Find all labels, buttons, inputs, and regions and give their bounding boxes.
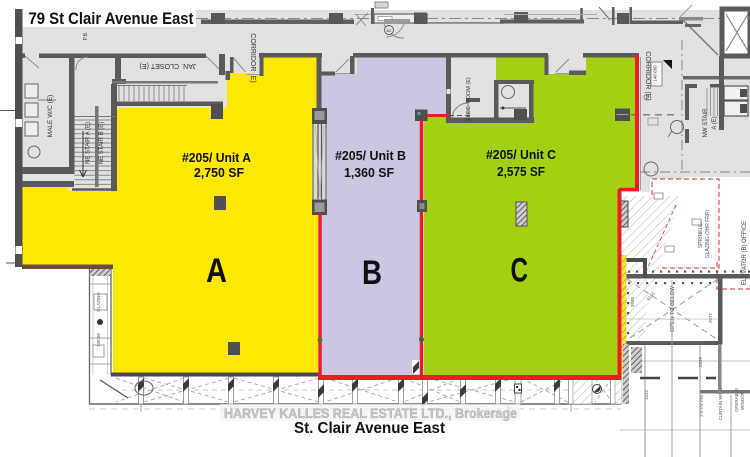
svg-text:ELEC. ROOM (E): ELEC. ROOM (E) — [466, 77, 472, 121]
svg-text:HARVEY KALLES REAL ESTATE LTD.: HARVEY KALLES REAL ESTATE LTD., Brokerag… — [224, 406, 517, 421]
svg-text:P.B.: P.B. — [83, 32, 89, 41]
svg-text:#205/ Unit C: #205/ Unit C — [486, 147, 557, 162]
svg-text:GLAZING: GLAZING — [96, 292, 101, 312]
svg-text:#205/ Unit A: #205/ Unit A — [182, 150, 252, 165]
svg-text:B: B — [362, 254, 382, 292]
svg-text:MALE W/C (E): MALE W/C (E) — [47, 95, 54, 138]
svg-text:NE STAIR B (E): NE STAIR B (E) — [99, 122, 105, 165]
svg-text:1525: 1525 — [644, 389, 649, 400]
svg-text:OPEN TO BELOW: OPEN TO BELOW — [670, 285, 676, 332]
svg-text:2,575 SF: 2,575 SF — [497, 164, 545, 179]
svg-text:GLAZING (3HR FRR): GLAZING (3HR FRR) — [705, 210, 711, 259]
svg-text:2-0 PV PM: 2-0 PV PM — [699, 395, 704, 417]
svg-text:St. Clair Avenue East: St. Clair Avenue East — [294, 420, 445, 437]
svg-text:B2: B2 — [387, 28, 393, 33]
svg-text:2077: 2077 — [708, 312, 713, 323]
svg-text:79 St Clair Avenue East: 79 St Clair Avenue East — [29, 10, 194, 28]
svg-text:A (E): A (E) — [712, 116, 718, 129]
svg-text:#205/ Unit B: #205/ Unit B — [335, 148, 406, 163]
svg-text:2,750 SF: 2,750 SF — [194, 165, 244, 180]
svg-text:A: A — [206, 252, 227, 290]
svg-text:146 660: 146 660 — [653, 65, 658, 82]
svg-text:3939: 3939 — [630, 296, 635, 307]
svg-text:CORRIDOR (E): CORRIDOR (E) — [249, 33, 256, 82]
svg-text:148.66: 148.66 — [96, 333, 101, 347]
svg-text:1,360 SF: 1,360 SF — [344, 165, 394, 180]
svg-text:CORRIDOR (E): CORRIDOR (E) — [644, 51, 651, 100]
svg-text:C: C — [511, 252, 529, 290]
svg-text:JAN. CLOSET (E): JAN. CLOSET (E) — [140, 62, 197, 69]
svg-text:NW STAIR: NW STAIR — [703, 108, 709, 138]
svg-text:NE STAIR A (E): NE STAIR A (E) — [86, 122, 92, 164]
svg-text:2239: 2239 — [698, 356, 703, 367]
